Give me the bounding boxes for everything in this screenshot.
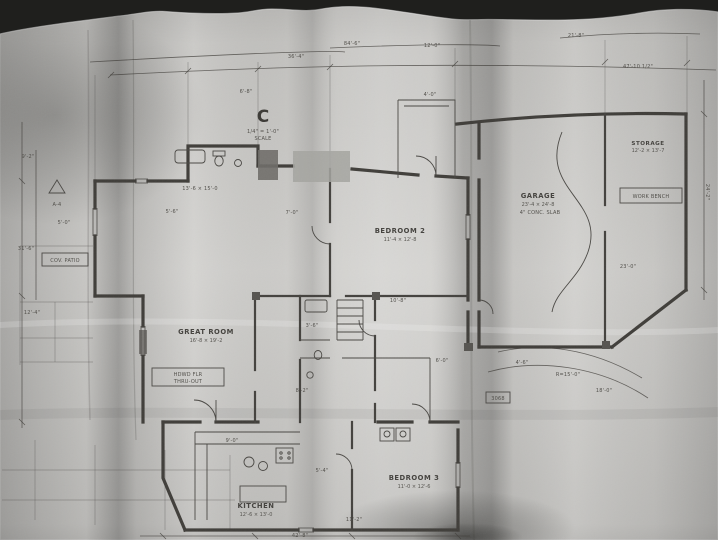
floor-plan-drawing: C A-4 GARAGE 23'-4 × 24'-8 4" CONC. SLAB… xyxy=(0,0,718,540)
blueprint-photo: C A-4 GARAGE 23'-4 × 24'-8 4" CONC. SLAB… xyxy=(0,0,718,540)
photo-grain-overlay xyxy=(0,0,718,540)
